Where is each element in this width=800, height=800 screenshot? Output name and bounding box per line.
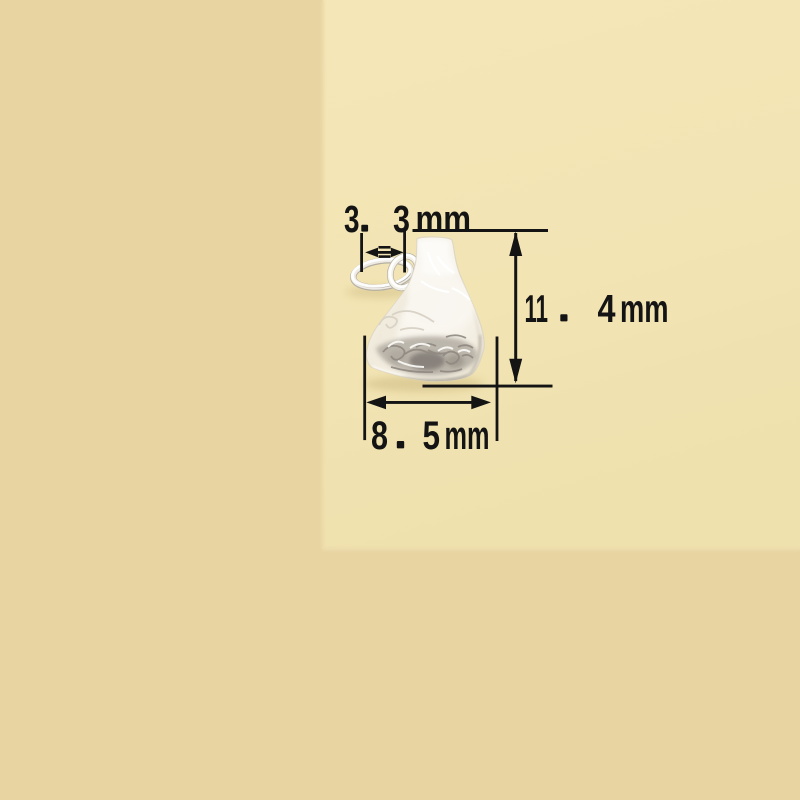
svg-text:mm: mm — [620, 288, 669, 331]
svg-text:8: 8 — [371, 414, 388, 458]
svg-text:5: 5 — [423, 414, 441, 458]
svg-text:mm: mm — [445, 414, 490, 458]
svg-text:3: 3 — [393, 199, 410, 241]
svg-text:mm: mm — [416, 199, 472, 241]
svg-text:3: 3 — [344, 199, 360, 241]
svg-text:4: 4 — [598, 288, 616, 331]
svg-text:11: 11 — [525, 288, 549, 331]
